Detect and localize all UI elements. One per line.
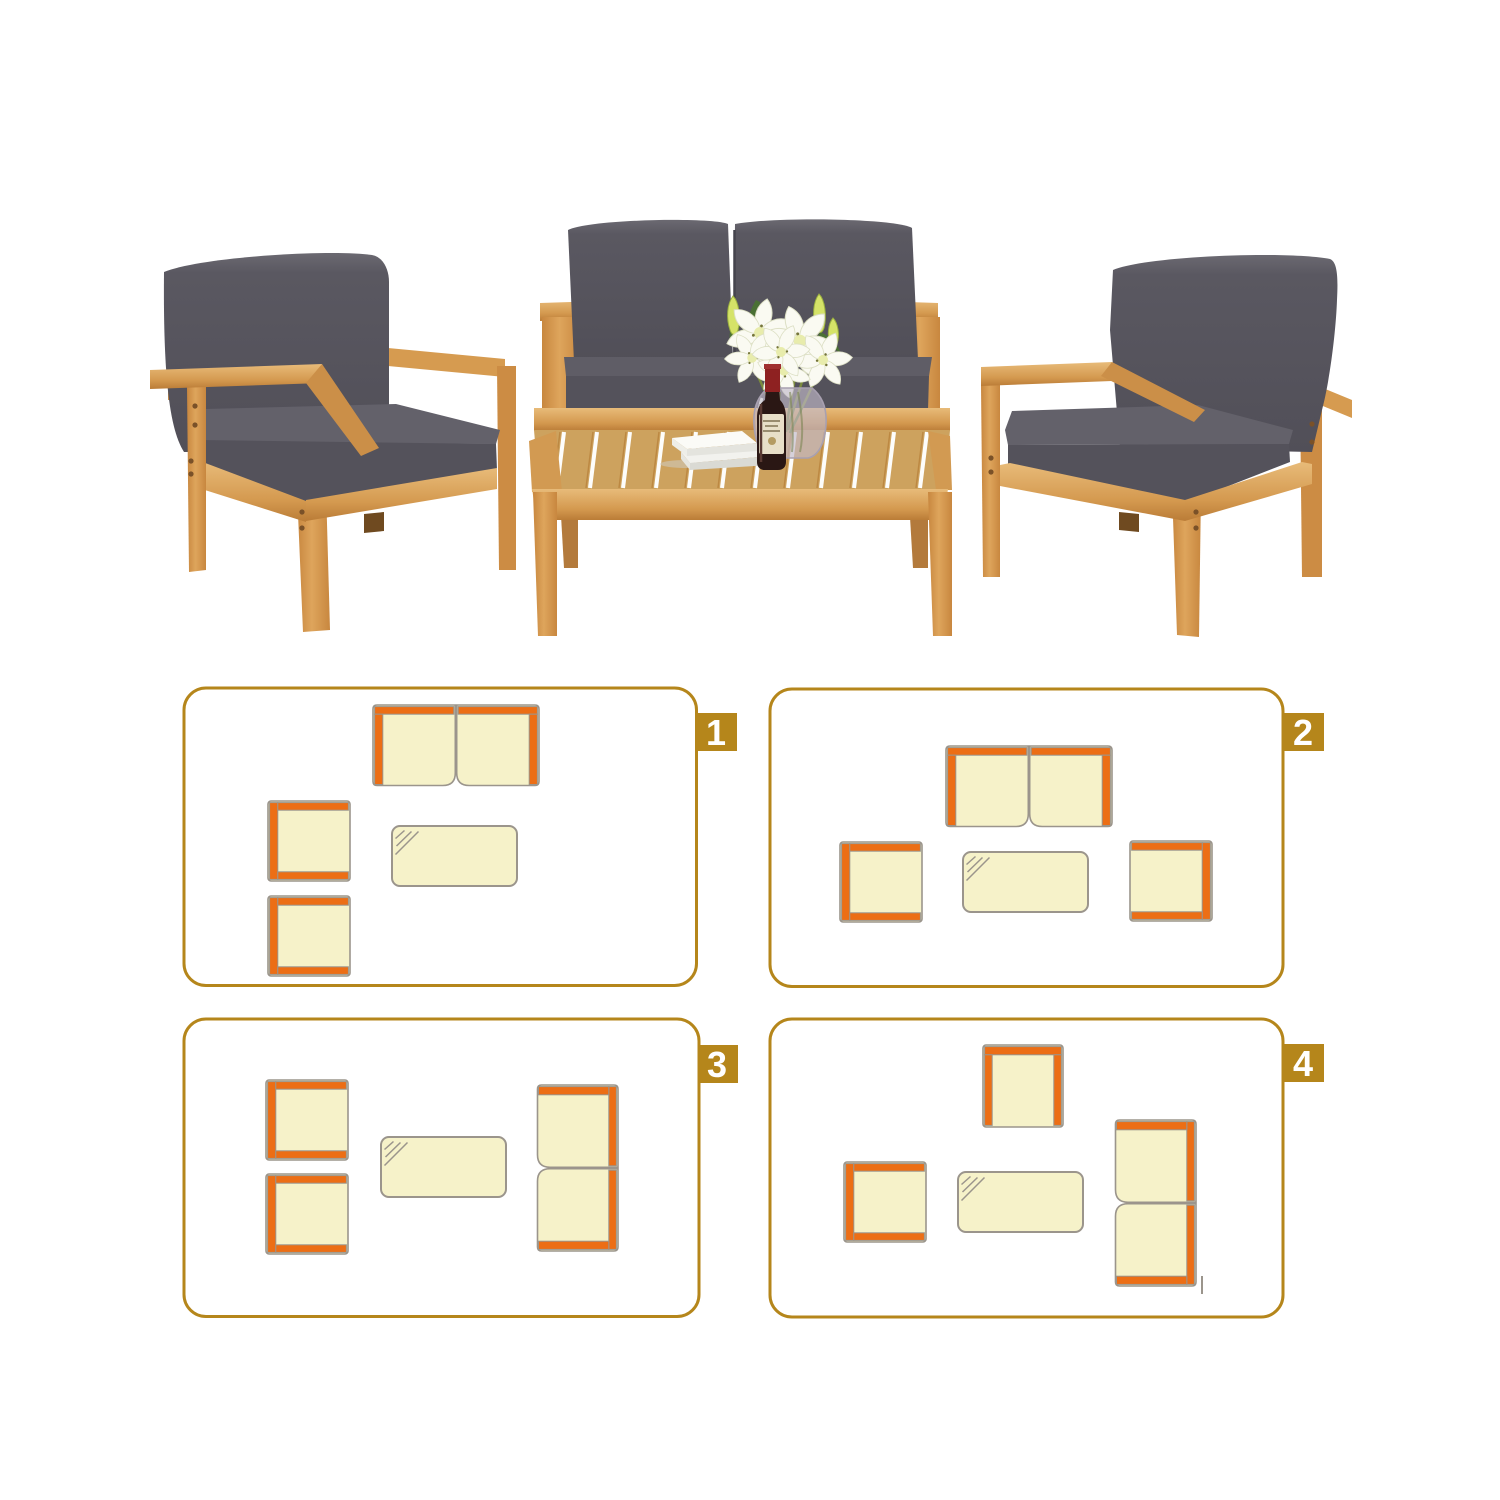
svg-text:2: 2 (1293, 712, 1313, 753)
svg-text:1: 1 (706, 712, 726, 753)
svg-text:4: 4 (1293, 1043, 1313, 1084)
svg-text:3: 3 (707, 1044, 727, 1085)
